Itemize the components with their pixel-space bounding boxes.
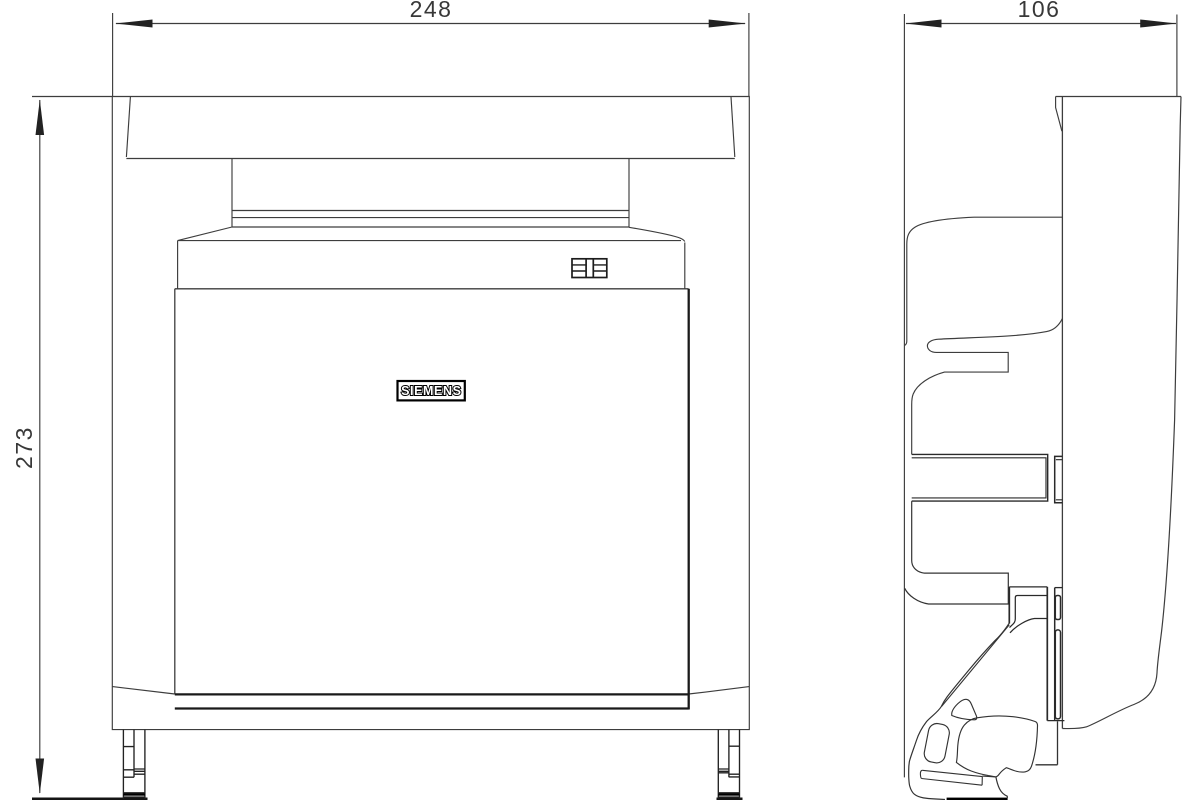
- svg-text:248: 248: [410, 0, 453, 22]
- svg-text:106: 106: [1018, 0, 1061, 22]
- svg-text:273: 273: [11, 426, 37, 469]
- svg-text:SIEMENS: SIEMENS: [401, 384, 461, 398]
